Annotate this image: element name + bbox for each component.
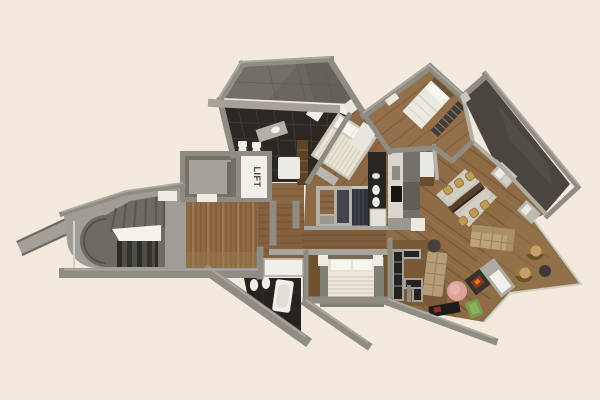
svg-text:LIFT: LIFT [252, 167, 262, 188]
